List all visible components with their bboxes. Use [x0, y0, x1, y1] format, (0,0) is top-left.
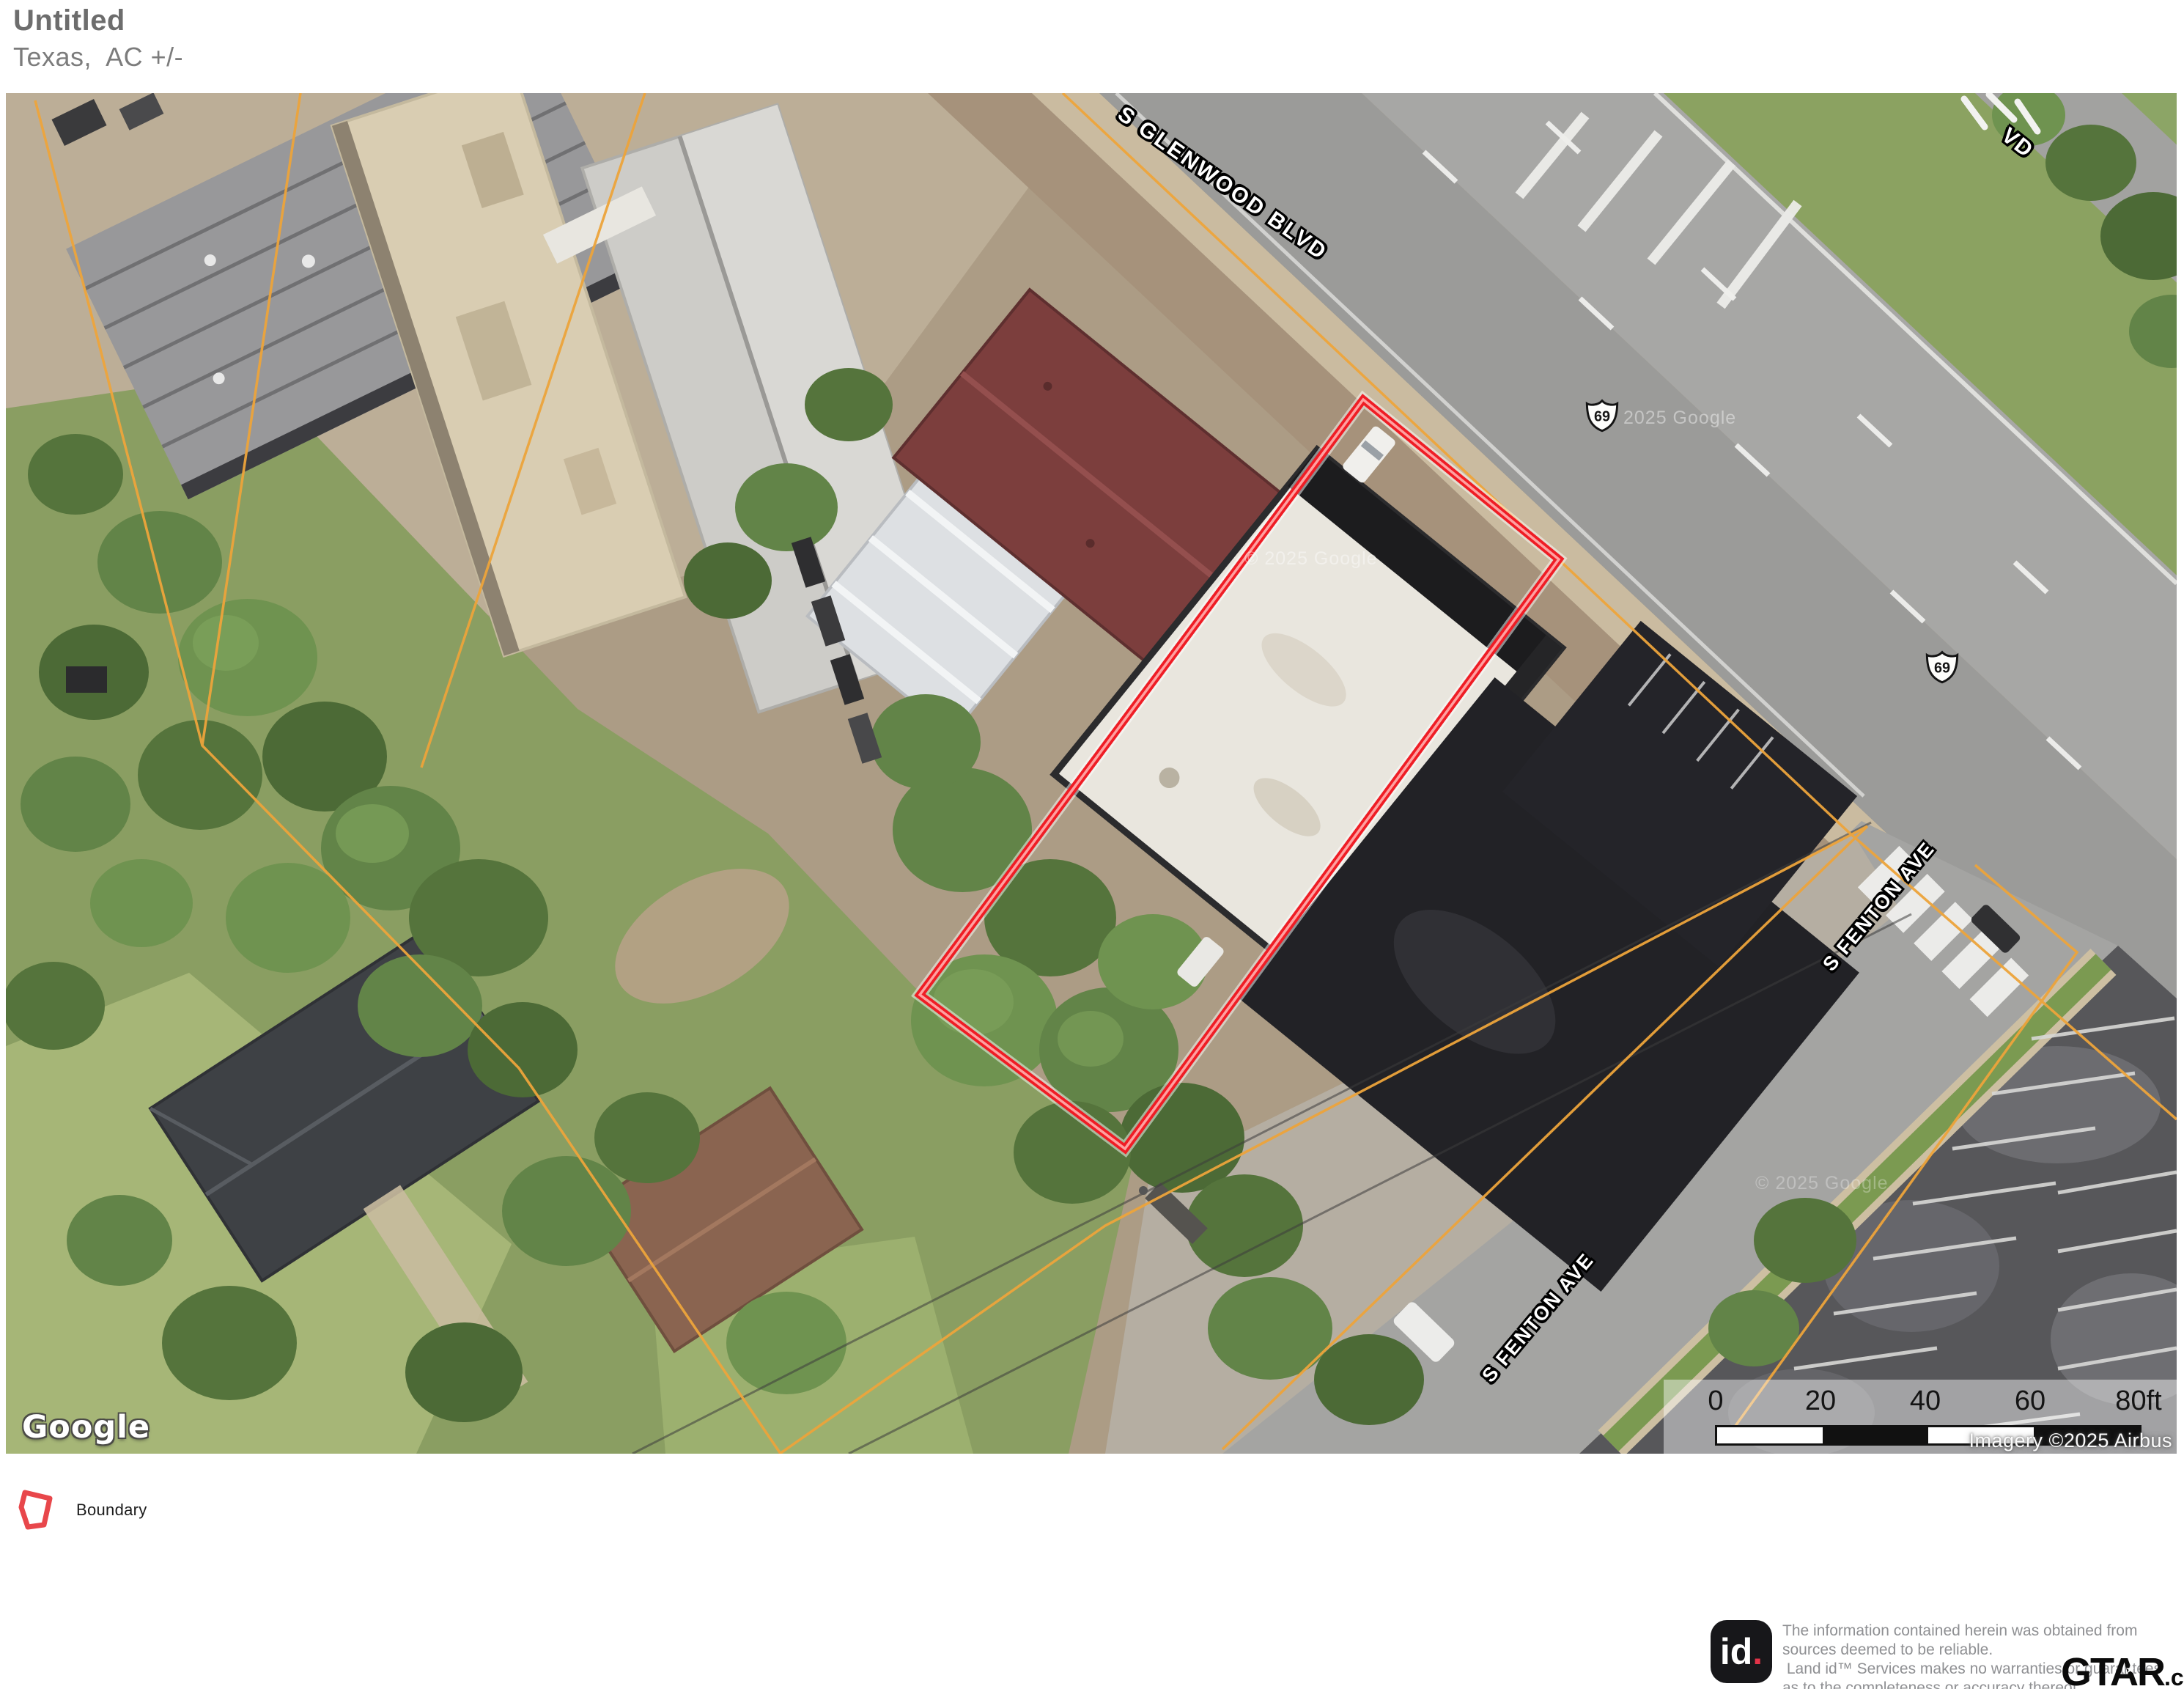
legend-boundary-label: Boundary	[76, 1501, 147, 1520]
svg-text:69: 69	[1934, 660, 1950, 676]
google-watermark: © 2025 Google	[1755, 1173, 1889, 1194]
star-icon: ★	[2125, 1663, 2135, 1676]
scale-tick: 60	[2015, 1386, 2045, 1417]
legend: Boundary	[18, 1488, 147, 1532]
map-canvas[interactable]: S GLENWOOD BLVD VD S FENTON AVE S FENTON…	[6, 93, 2177, 1454]
page-title: Untitled	[13, 4, 183, 37]
scale-tick: 0	[1708, 1386, 1723, 1417]
land-id-logo: id.	[1711, 1620, 1772, 1683]
imagery-attribution: Imagery ©2025 Airbus	[1969, 1429, 2172, 1452]
land-id-logo-text: id	[1720, 1630, 1752, 1673]
satellite-imagery	[6, 93, 2177, 1454]
map-header: Untitled Texas, AC +/-	[13, 4, 183, 73]
route-69-shield-icon: 69	[1585, 399, 1619, 433]
route-69-shield-icon: 69	[1925, 650, 1959, 684]
scale-tick: 80ft	[2115, 1386, 2161, 1417]
utility-pole	[1139, 1186, 1148, 1195]
gtar-logo-text: GTAR	[2061, 1650, 2164, 1689]
page-subtitle: Texas, AC +/-	[13, 42, 183, 73]
disclaimer-line: The information contained herein was obt…	[1782, 1622, 2178, 1641]
gtar-logo: GTAR.com ★	[2061, 1649, 2184, 1689]
land-id-logo-dot: .	[1752, 1630, 1763, 1673]
scale-tick: 20	[1805, 1386, 1836, 1417]
report-page: Untitled Texas, AC +/-	[0, 0, 2184, 1689]
gtar-logo-suffix: .com	[2164, 1664, 2184, 1689]
scale-tick: 40	[1910, 1386, 1941, 1417]
svg-text:69: 69	[1594, 408, 1610, 424]
google-logo: Google	[22, 1409, 150, 1446]
boundary-legend-icon	[18, 1488, 56, 1532]
google-watermark: © 2025 Google	[1244, 548, 1378, 570]
google-watermark: 2025 Google	[1623, 408, 1736, 429]
